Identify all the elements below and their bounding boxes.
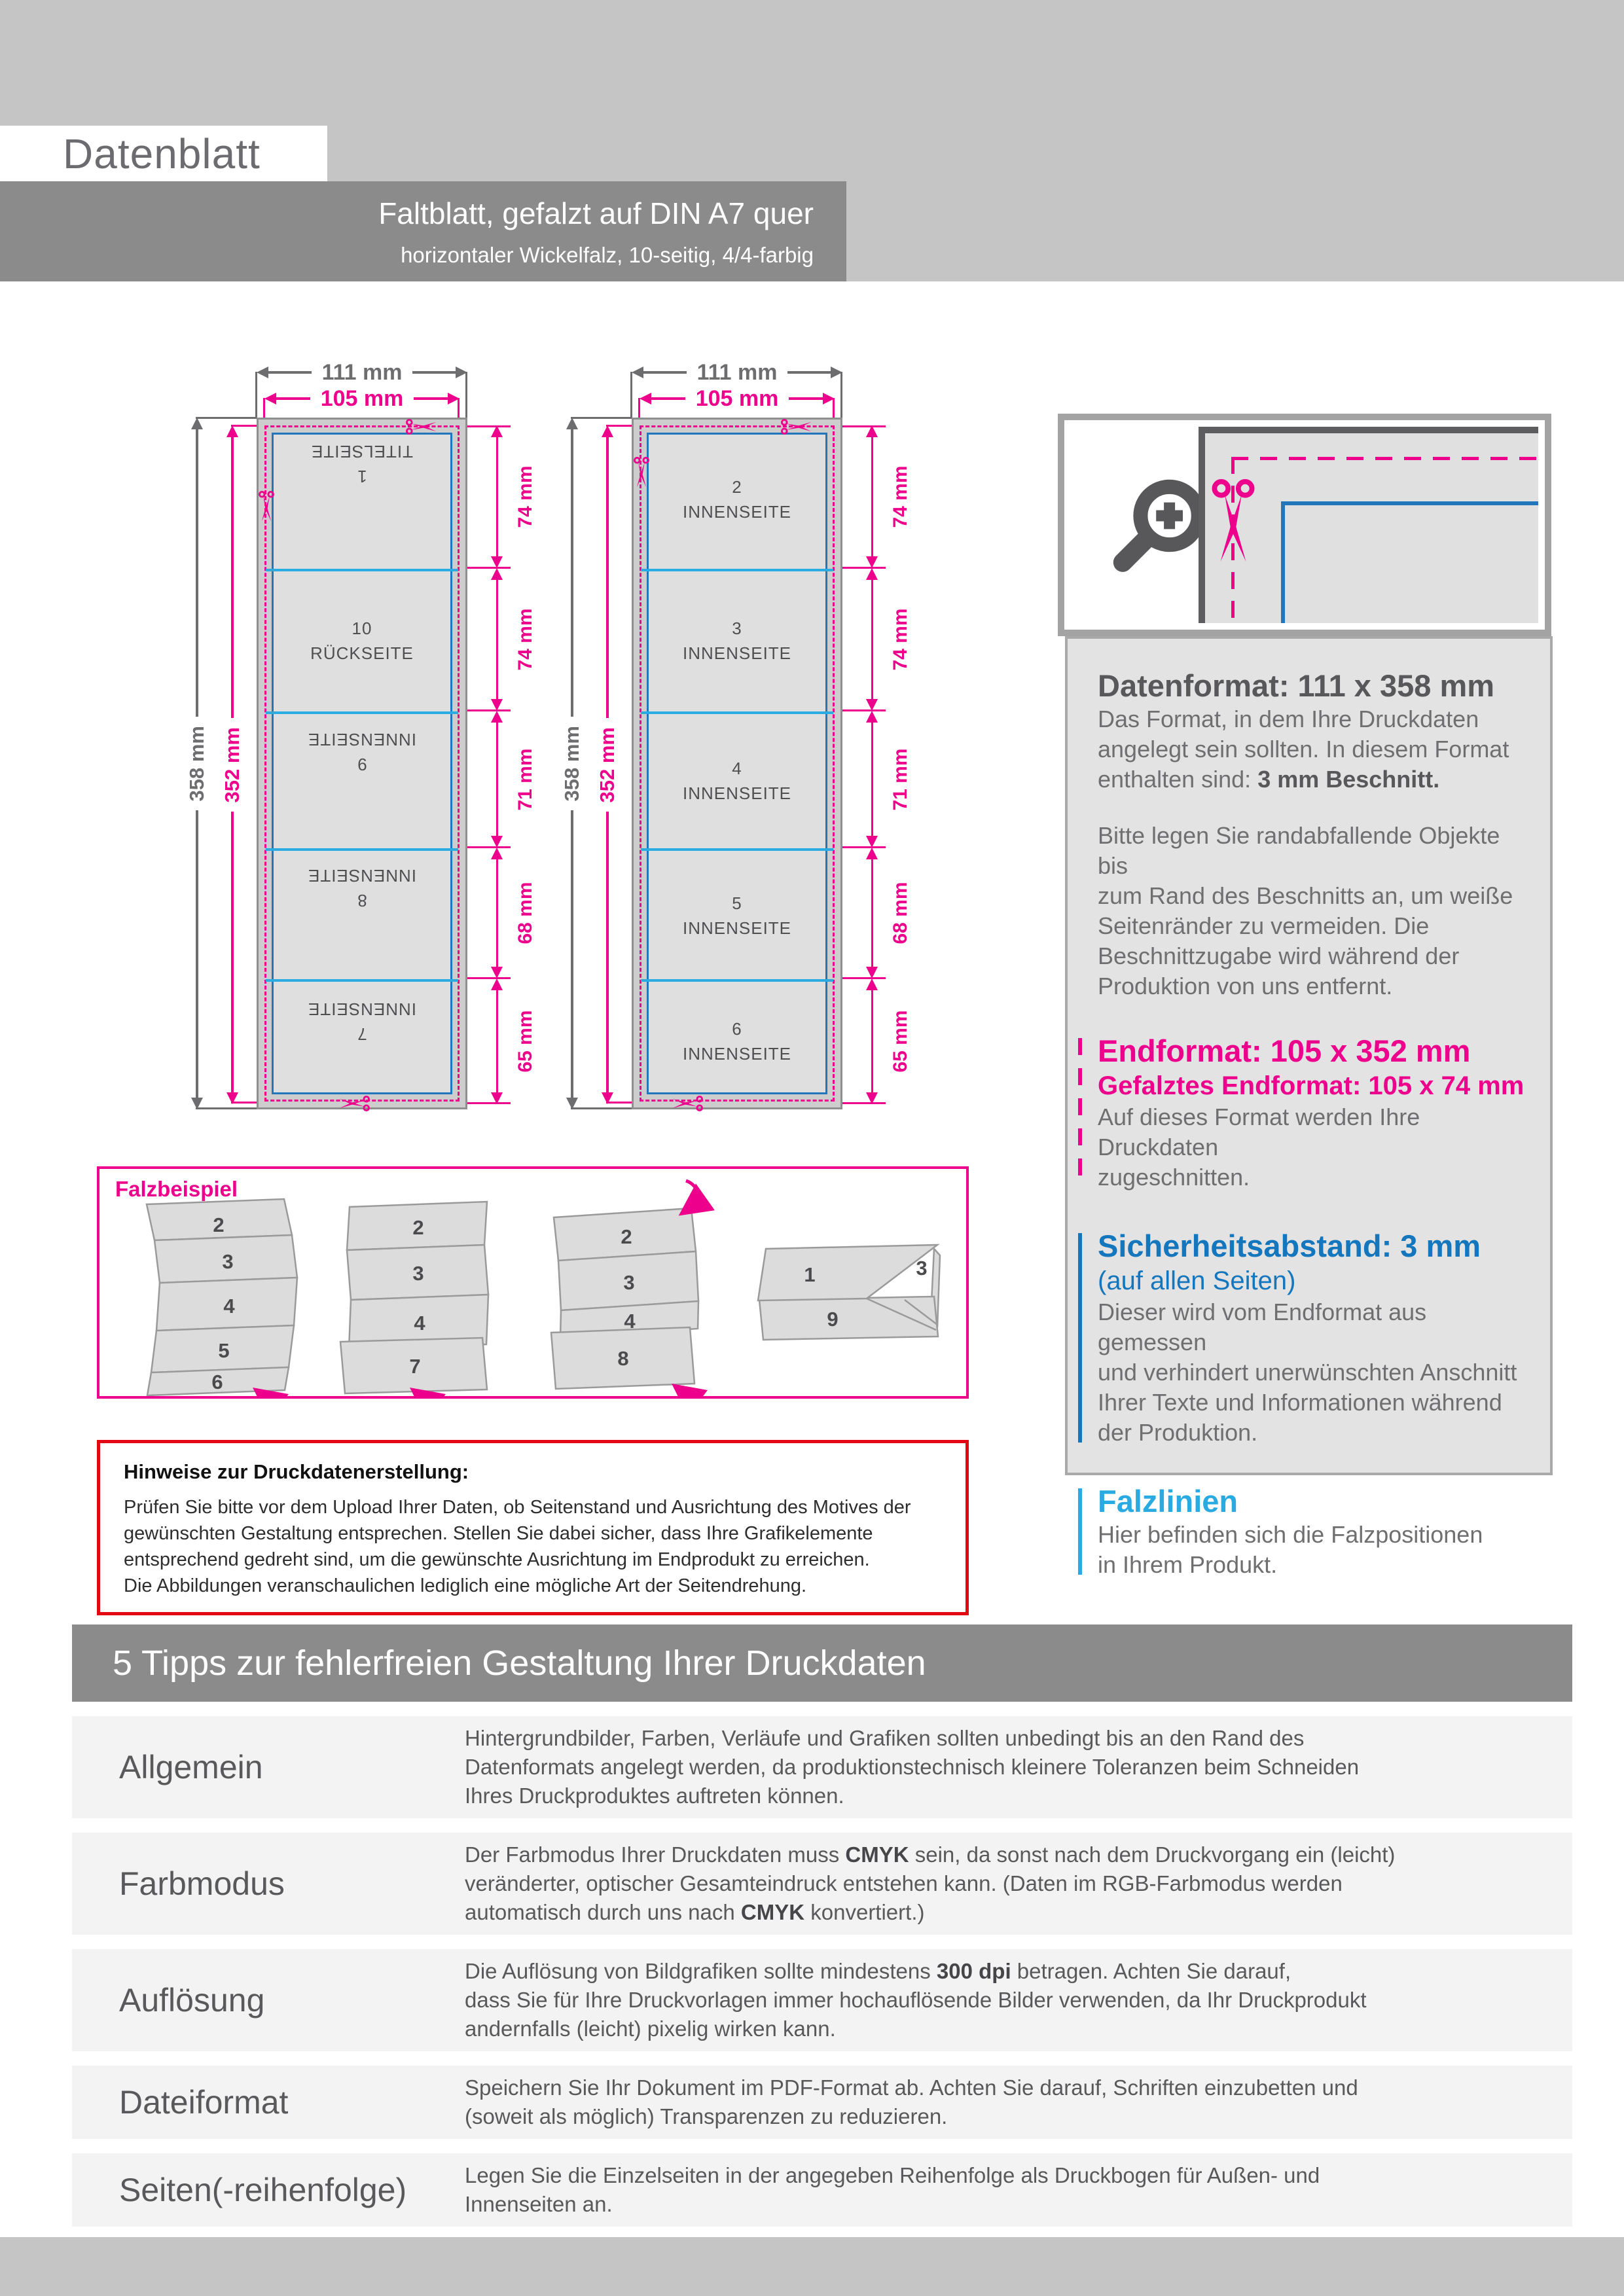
tip-label: Farbmodus [72, 1865, 465, 1903]
tip-text: Speichern Sie Ihr Dokument im PDF-Format… [465, 2073, 1384, 2131]
segment-dim: 68 mm [467, 848, 539, 978]
datasheet-page: Datenblatt Faltblatt, gefalzt auf DIN A7… [0, 0, 1624, 2296]
tick [571, 417, 632, 419]
tick [630, 372, 632, 419]
trim-line-detail [1231, 457, 1538, 460]
scissors-icon [257, 491, 276, 522]
svg-text:3: 3 [916, 1257, 927, 1280]
notes-line: Prüfen Sie bitte vor dem Upload Ihrer Da… [124, 1494, 935, 1520]
svg-text:4: 4 [624, 1310, 636, 1333]
page-label-9: 9INNENSEITE [259, 727, 465, 777]
svg-text:4: 4 [414, 1312, 425, 1335]
svg-text:3: 3 [623, 1271, 634, 1294]
svg-text:2: 2 [412, 1216, 424, 1239]
svg-text:6: 6 [211, 1371, 223, 1393]
fold-line [641, 711, 833, 714]
svg-text:5: 5 [218, 1339, 229, 1362]
tip-row-aufloesung: Auflösung Die Auflösung von Bildgrafiken… [72, 1949, 1572, 2051]
falzlinien-section: Falzlinien Hier befinden sich die Falzpo… [1068, 1483, 1526, 1580]
svg-text:2: 2 [213, 1213, 224, 1236]
segment-dimensions-panel2: 74 mm 74 mm 71 mm 68 mm 65 mm [842, 425, 914, 1104]
tip-row-farbmodus: Farbmodus Der Farbmodus Ihrer Druckdaten… [72, 1833, 1572, 1935]
segment-dim: 71 mm [842, 711, 914, 848]
tip-text: Die Auflösung von Bildgrafiken sollte mi… [465, 1957, 1393, 2043]
endformat-subtitle: Gefalztes Endformat: 105 x 74 mm [1098, 1069, 1526, 1102]
tip-label: Auflösung [72, 1981, 465, 2019]
notes-line: Die Abbildungen veranschaulichen ledigli… [124, 1573, 935, 1599]
endformat-section: Endformat: 105 x 352 mm Gefalztes Endfor… [1068, 1033, 1526, 1193]
svg-text:1: 1 [804, 1263, 815, 1286]
svg-text:7: 7 [409, 1355, 420, 1378]
page-label-2: 2INNENSEITE [634, 475, 840, 524]
dim-height-inner-panel1: 352 mm [224, 425, 241, 1104]
print-data-notes-box: Hinweise zur Druckdatenerstellung: Prüfe… [97, 1440, 969, 1615]
svg-text:3: 3 [222, 1250, 233, 1273]
segment-dim: 65 mm [842, 978, 914, 1104]
scissors-icon [632, 457, 651, 488]
sicherheitsabstand-subtitle: (auf allen Seiten) [1098, 1265, 1526, 1297]
notes-title: Hinweise zur Druckdatenerstellung: [124, 1460, 942, 1484]
fold-line [266, 848, 458, 851]
page-label-7: 7INNENSEITE [259, 997, 465, 1047]
svg-text:9: 9 [827, 1308, 838, 1331]
dim-width-inner-panel1: 105 mm [264, 387, 460, 410]
dim-height-inner-panel2: 352 mm [599, 425, 616, 1104]
tick [255, 372, 257, 419]
sicherheitsabstand-section: Sicherheitsabstand: 3 mm (auf allen Seit… [1068, 1228, 1526, 1448]
scissors-icon [338, 1094, 370, 1113]
safety-line-detail [1281, 501, 1538, 505]
tip-label: Allgemein [72, 1748, 465, 1786]
tick [196, 417, 257, 419]
segment-dim: 68 mm [842, 848, 914, 978]
fold-arrow [673, 1391, 688, 1396]
footer-bar [0, 2237, 1624, 2296]
fold-example-diagrams: 2 3 4 5 6 2 3 4 7 2 3 4 8 1 9 3 [99, 1169, 966, 1396]
tick [465, 372, 467, 419]
fold-line [641, 848, 833, 851]
tip-text: Legen Sie die Einzelseiten in der angege… [465, 2161, 1346, 2219]
falzlinien-title: Falzlinien [1098, 1483, 1526, 1520]
tick [571, 1107, 632, 1109]
fold-arrow [411, 1395, 426, 1396]
product-subtitle: horizontaler Wickelfalz, 10-seitig, 4/4-… [401, 243, 846, 268]
page-label-8: 8INNENSEITE [259, 863, 465, 913]
fold-line [641, 979, 833, 982]
segment-dim: 74 mm [467, 568, 539, 711]
trim-rule [1078, 1038, 1082, 1187]
fold-arrow [254, 1395, 269, 1396]
tip-row-allgemein: Allgemein Hintergrundbilder, Farben, Ver… [72, 1716, 1572, 1818]
page-title: Datenblatt [0, 130, 261, 178]
dim-width-outer-panel2: 111 mm [632, 361, 842, 384]
tick [196, 1107, 257, 1109]
segment-dim: 74 mm [467, 425, 539, 568]
scissors-icon [672, 1094, 703, 1113]
tip-text: Hintergrundbilder, Farben, Verläufe und … [465, 1724, 1385, 1810]
tip-label: Seiten(-reihenfolge) [72, 2171, 465, 2209]
fold-line [266, 569, 458, 571]
page-label-5: 5INNENSEITE [634, 891, 840, 941]
segment-dim: 65 mm [467, 978, 539, 1104]
corner-detail-illustration [1199, 427, 1538, 623]
notes-line: entsprechend gedreht sind, um die gewüns… [124, 1547, 935, 1573]
svg-text:8: 8 [617, 1347, 628, 1370]
datenformat-title: Datenformat: 111 x 358 mm [1098, 668, 1526, 704]
fold-rule [1078, 1488, 1082, 1575]
safety-rule [1078, 1233, 1082, 1443]
notes-line: gewünschten Gestaltung entsprechen. Stel… [124, 1520, 935, 1547]
sicherheitsabstand-title: Sicherheitsabstand: 3 mm [1098, 1228, 1526, 1265]
page-label-6: 6INNENSEITE [634, 1016, 840, 1066]
tip-label: Dateiformat [72, 2083, 465, 2121]
datenformat-section: Datenformat: 111 x 358 mm Das Format, in… [1068, 668, 1526, 1001]
segment-dimensions-panel1: 74 mm 74 mm 71 mm 68 mm 65 mm [467, 425, 539, 1104]
svg-text:4: 4 [223, 1295, 235, 1318]
tick [840, 372, 842, 419]
tip-row-seitenreihenfolge: Seiten(-reihenfolge) Legen Sie die Einze… [72, 2153, 1572, 2227]
page-label-1: 1TITELSEITE [259, 439, 465, 489]
svg-text:3: 3 [412, 1262, 424, 1285]
segment-dim: 74 mm [842, 568, 914, 711]
layout-panel-inner-pages: 2INNENSEITE 3INNENSEITE 4INNENSEITE 5INN… [632, 418, 842, 1109]
page-label-3: 3INNENSEITE [634, 616, 840, 666]
safety-line-detail [1281, 501, 1285, 623]
scissors-icon [1208, 479, 1259, 564]
endformat-title: Endformat: 105 x 352 mm [1098, 1033, 1526, 1069]
tip-text: Der Farbmodus Ihrer Druckdaten muss CMYK… [465, 1840, 1421, 1927]
fold-example-box: Falzbeispiel [97, 1166, 969, 1399]
dim-height-outer-panel1: 358 mm [189, 418, 206, 1109]
segment-dim: 71 mm [467, 711, 539, 848]
fold-line [266, 979, 458, 982]
tip-row-dateiformat: Dateiformat Speichern Sie Ihr Dokument i… [72, 2066, 1572, 2139]
scissors-icon [781, 417, 812, 437]
segment-dim: 74 mm [842, 425, 914, 568]
page-label-4: 4INNENSEITE [634, 756, 840, 806]
fold-line [266, 711, 458, 714]
layout-panel-outer-pages: 1TITELSEITE 10RÜCKSEITE 9INNENSEITE 8INN… [257, 418, 467, 1109]
page-title-box: Datenblatt [0, 126, 327, 181]
dim-width-inner-panel2: 105 mm [640, 387, 835, 410]
format-info-panel: Datenformat: 111 x 358 mm Das Format, in… [1065, 636, 1553, 1475]
product-title-bar: Faltblatt, gefalzt auf DIN A7 quer horiz… [0, 181, 846, 281]
zoom-detail-box [1058, 414, 1551, 636]
svg-text:2: 2 [621, 1225, 632, 1248]
fold-line [641, 569, 833, 571]
product-title: Faltblatt, gefalzt auf DIN A7 quer [378, 196, 846, 231]
tips-section: 5 Tipps zur fehlerfreien Gestaltung Ihre… [72, 1624, 1572, 2227]
dim-height-outer-panel2: 358 mm [564, 418, 581, 1109]
scissors-icon [406, 417, 437, 437]
tips-title-bar: 5 Tipps zur fehlerfreien Gestaltung Ihre… [72, 1624, 1572, 1702]
dim-width-outer-panel1: 111 mm [257, 361, 467, 384]
fold-arrow [686, 1181, 697, 1208]
tips-title: 5 Tipps zur fehlerfreien Gestaltung Ihre… [72, 1643, 926, 1683]
page-label-10: 10RÜCKSEITE [259, 616, 465, 666]
